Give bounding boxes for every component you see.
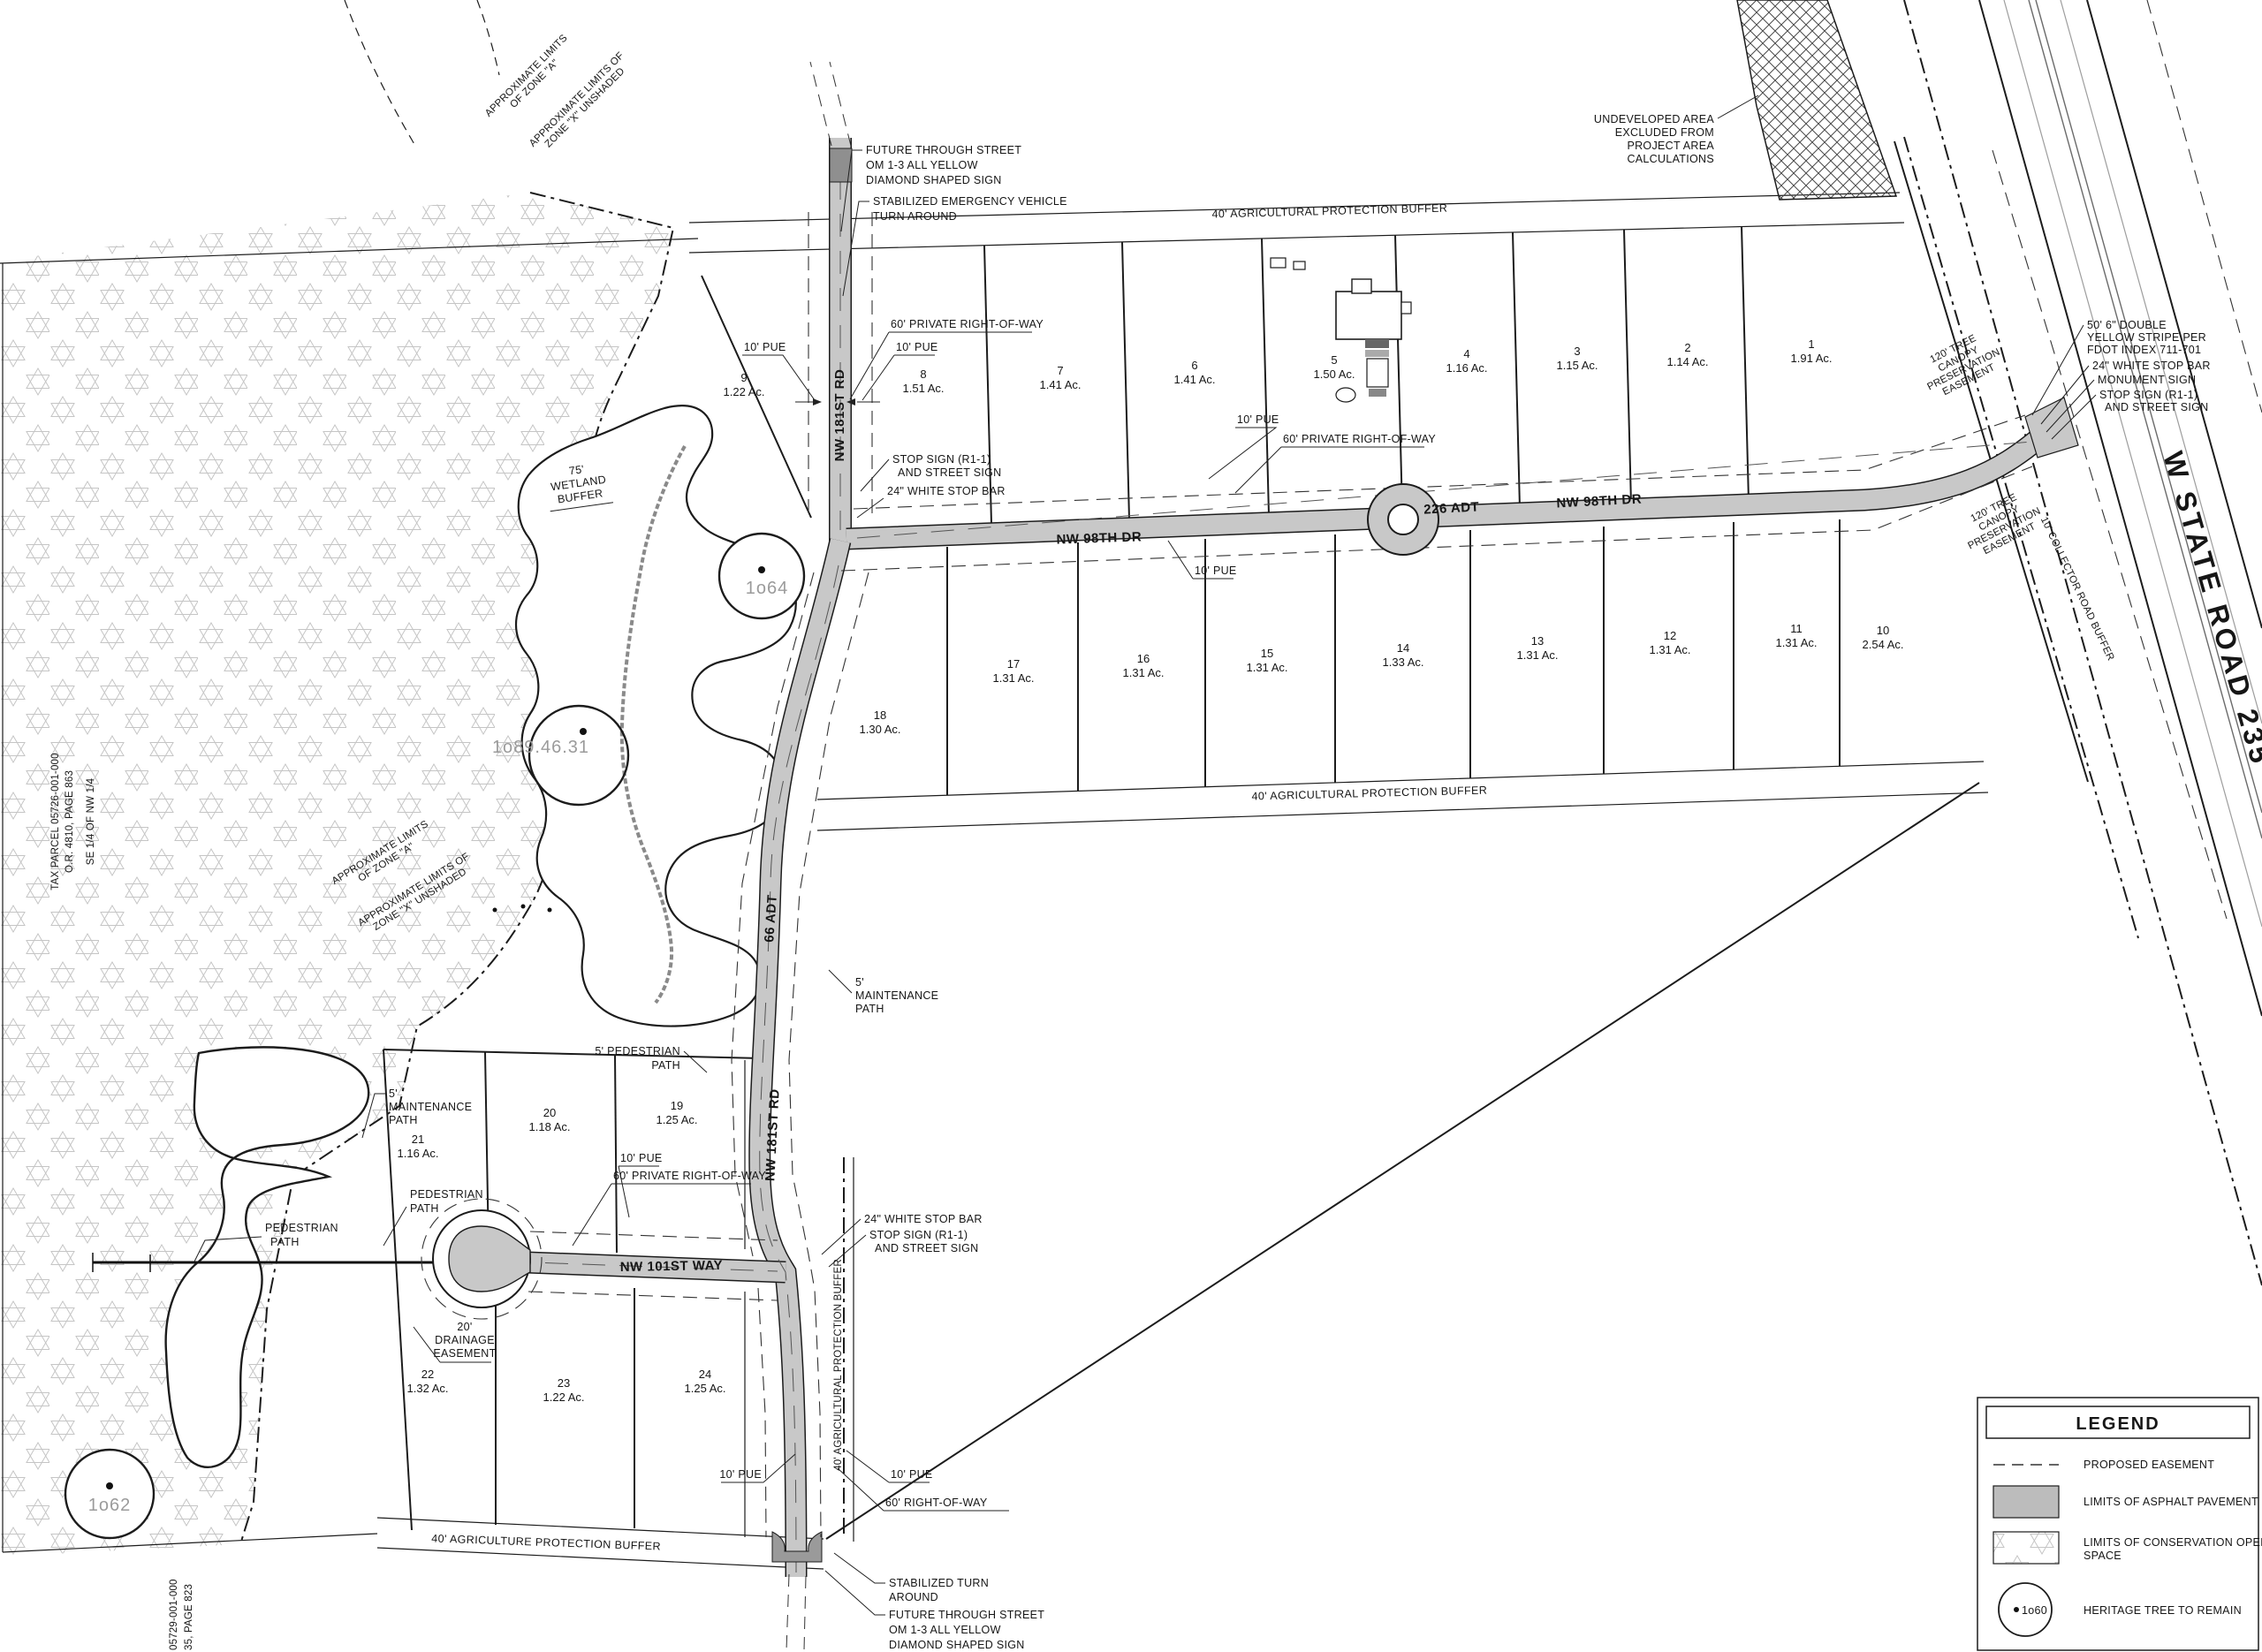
callout-line: YELLOW STRIPE PER: [2087, 331, 2206, 344]
legend-symbol-asphalt: [1993, 1486, 2059, 1518]
buffer-label-mid: 40' AGRICULTURAL PROTECTION BUFFER: [1251, 784, 1487, 803]
callout-stabilized-turn: STABILIZED TURN AROUND: [834, 1553, 989, 1603]
callout-stop-bar-101: 24" WHITE STOP BAR STOP SIGN (R1-1) AND …: [822, 1213, 983, 1267]
callout-line: OM 1-3 ALL YELLOW: [866, 159, 978, 171]
callout-line: UNDEVELOPED AREA: [1594, 113, 1714, 125]
lot-acreage: 1.41 Ac.: [1040, 378, 1082, 391]
callout-line: CALCULATIONS: [1627, 153, 1714, 165]
lot-number: 21: [412, 1133, 424, 1146]
tax-parcel-bottom-line2: 35, PAGE 823: [184, 1584, 194, 1650]
callout-line: MAINTENANCE: [389, 1101, 472, 1113]
lot-acreage: 1.41 Ac.: [1174, 373, 1216, 386]
callout-line: PROJECT AREA: [1627, 140, 1714, 152]
callout-line: 10' PUE: [1237, 413, 1279, 426]
lot-number: 17: [1007, 657, 1020, 671]
callout-pue-g: 10' PUE: [846, 1451, 933, 1482]
callout-pue-d: 10' PUE: [1168, 541, 1237, 579]
wetland-buffer-line: 75': [568, 463, 585, 477]
callout-line: 24" WHITE STOP BAR: [887, 485, 1006, 497]
road-adt-226: 226 ADT: [1423, 499, 1480, 517]
callout-line: 60' PRIVATE RIGHT-OF-WAY: [1283, 433, 1436, 445]
callout-pue-f: 10' PUE: [719, 1454, 795, 1482]
lot-acreage: 1.16 Ac.: [1446, 361, 1488, 375]
lot-acreage: 1.91 Ac.: [1791, 352, 1833, 365]
lot-number: 1: [1808, 337, 1814, 351]
lot-number: 14: [1397, 641, 1409, 655]
lot-acreage: 1.31 Ac.: [1517, 648, 1559, 662]
road-name-nw98th-west: NW 98TH DR: [1056, 529, 1142, 547]
lot-acreage: 2.54 Ac.: [1863, 638, 1904, 651]
buffer-labels: 40' AGRICULTURAL PROTECTION BUFFER 40' A…: [431, 202, 2116, 1553]
callout-line: FUTURE THROUGH STREET: [889, 1609, 1044, 1621]
lot-acreage: 1.31 Ac.: [993, 671, 1035, 685]
callout-stop-bar-west: 24" WHITE STOP BAR: [857, 485, 1006, 518]
callout-line: 24" WHITE STOP BAR: [864, 1213, 983, 1225]
callout-line: AND STREET SIGN: [875, 1242, 978, 1254]
callout-line: MAINTENANCE: [855, 989, 938, 1002]
lot-acreage: 1.16 Ac.: [398, 1147, 439, 1160]
callout-line: STOP SIGN (R1-1): [2099, 389, 2197, 401]
callout-line: FDOT INDEX 711-701: [2087, 344, 2201, 356]
callout-line: PEDESTRIAN: [265, 1222, 338, 1234]
lot-acreage: 1.15 Ac.: [1557, 359, 1598, 372]
callout-private-row-top: 60' PRIVATE RIGHT-OF-WAY: [850, 318, 1044, 399]
state-road-235: [1904, 0, 2262, 1285]
road-name-state-road-235: W STATE ROAD 235: [2157, 448, 2262, 769]
lot-number: 16: [1137, 652, 1150, 665]
lot-number: 2: [1684, 341, 1690, 354]
lot-acreage: 1.14 Ac.: [1667, 355, 1709, 368]
lot-number: 15: [1261, 647, 1273, 660]
lot-acreage: 1.31 Ac.: [1123, 666, 1165, 679]
callout-line: STABILIZED TURN: [889, 1577, 989, 1589]
lot-number: 4: [1463, 347, 1469, 360]
tax-parcel-left-line2: O.R. 4810, PAGE 863: [65, 770, 75, 873]
lot-acreage: 1.50 Ac.: [1314, 368, 1355, 381]
callout-line: TURN AROUND: [873, 210, 957, 223]
heritage-tree-circle-1o62: [65, 1450, 154, 1538]
undeveloped-area-hatch: [1737, 0, 1896, 200]
roundabout: [1368, 484, 1438, 555]
lot-acreage: 1.22 Ac.: [543, 1391, 585, 1404]
collector-road-buffer-label: 10' COLLECTOR ROAD BUFFER: [2038, 515, 2116, 663]
lot-acreage: 1.31 Ac.: [1776, 636, 1818, 649]
callout-line: 5': [855, 976, 864, 989]
callout-tree-canopy-upper: 120' TREE CANOPY PRESERVATION EASEMENT: [1916, 326, 2008, 403]
lot-number: 6: [1191, 359, 1197, 372]
lot-acreage: 1.18 Ac.: [529, 1120, 571, 1133]
legend-label-asphalt: LIMITS OF ASPHALT PAVEMENT: [2084, 1496, 2258, 1508]
callout-line: STOP SIGN (R1-1): [892, 453, 991, 466]
callout-line: OM 1-3 ALL YELLOW: [889, 1624, 1001, 1636]
legend: LEGEND PROPOSED EASEMENT LIMITS OF ASPHA…: [1977, 1398, 2262, 1650]
lot-number: 3: [1574, 345, 1580, 358]
lot-acreage: 1.25 Ac.: [685, 1382, 726, 1395]
road-name-nw181st-north: NW 181ST RD: [832, 369, 847, 462]
lot-number: 8: [920, 368, 926, 381]
lot-number: 9: [740, 371, 747, 384]
legend-title: LEGEND: [2076, 1414, 2160, 1434]
callout-line: ZONE "X" UNSHADED: [543, 66, 627, 150]
callout-line: PATH: [651, 1059, 680, 1072]
callout-line: 10' PUE: [744, 341, 786, 353]
legend-label-conservation-2: SPACE: [2084, 1550, 2122, 1562]
callout-line: AND STREET SIGN: [898, 466, 1001, 479]
callout-line: AND STREET SIGN: [2105, 401, 2208, 413]
lot-number: 12: [1664, 629, 1676, 642]
lot-number: 19: [671, 1099, 683, 1112]
tax-parcel-bottom-line1: 05729-001-000: [169, 1579, 179, 1650]
lot-acreage: 1.22 Ac.: [724, 385, 765, 398]
callout-line: MONUMENT SIGN: [2098, 374, 2196, 386]
callout-line: 24" WHITE STOP BAR: [2092, 360, 2211, 372]
lot-acreage: 1.31 Ac.: [1247, 661, 1288, 674]
road-name-nw101st: NW 101ST WAY: [620, 1258, 724, 1275]
legend-label-easement: PROPOSED EASEMENT: [2084, 1459, 2214, 1471]
tax-parcel-left-line3: SE 1/4 OF NW 1/4: [86, 777, 96, 865]
callout-line: 60' PRIVATE RIGHT-OF-WAY: [613, 1170, 766, 1182]
site-plan-drawing: 1o64 1o89.46.31 1o62 11.91 Ac. 21.14 Ac.…: [0, 0, 2262, 1652]
lot-number: 20: [543, 1106, 556, 1119]
site-plan-sheet: 1o64 1o89.46.31 1o62 11.91 Ac. 21.14 Ac.…: [0, 0, 2262, 1652]
callout-line: 10' PUE: [1195, 565, 1237, 577]
lot-number: 24: [699, 1368, 711, 1381]
cul-de-sac: [433, 1210, 530, 1307]
lot-acreage: 1.25 Ac.: [657, 1113, 698, 1126]
callout-pedestrian-path-5: 5' PEDESTRIAN PATH: [595, 1045, 707, 1072]
legend-label-conservation-1: LIMITS OF CONSERVATION OPEN: [2084, 1536, 2262, 1549]
callout-line: 5': [389, 1087, 398, 1100]
callout-drainage: 20' DRAINAGE EASEMENT: [414, 1321, 497, 1362]
callout-line: 10' PUE: [891, 1468, 933, 1481]
lot-acreage: 1.30 Ac.: [860, 723, 901, 736]
callout-line: PATH: [410, 1202, 439, 1215]
buffer-label-top: 40' AGRICULTURAL PROTECTION BUFFER: [1211, 202, 1447, 221]
callout-line: 60' PRIVATE RIGHT-OF-WAY: [891, 318, 1044, 330]
buffer-label-vertical: 40' AGRICULTURAL PROTECTION BUFFER: [833, 1259, 844, 1471]
lot-acreage: 1.32 Ac.: [407, 1382, 449, 1395]
callout-line: AROUND: [889, 1591, 938, 1603]
callout-line: PEDESTRIAN: [410, 1188, 483, 1201]
tree-tag-1o62: 1o62: [88, 1496, 132, 1515]
lot-number: 10: [1877, 624, 1889, 637]
legend-symbol-conservation: [1993, 1532, 2059, 1564]
callout-line: 10' PUE: [620, 1152, 663, 1164]
lot-number: 18: [874, 709, 886, 722]
callout-line: PATH: [389, 1114, 418, 1126]
callout-maintenance-path-mid: 5' MAINTENANCE PATH: [829, 970, 938, 1015]
lot-number: 7: [1057, 364, 1063, 377]
callout-pue-e: 10' PUE: [619, 1152, 663, 1217]
callout-line: PATH: [855, 1003, 884, 1015]
lot-number: 22: [421, 1368, 434, 1381]
callout-line: DIAMOND SHAPED SIGN: [889, 1639, 1025, 1651]
callout-line: EASEMENT: [433, 1347, 496, 1360]
tree-tag-1o64: 1o64: [746, 579, 789, 598]
callout-line: APPROXIMATE LIMITS: [483, 33, 570, 119]
callout-line: STABILIZED EMERGENCY VEHICLE: [873, 195, 1067, 208]
callout-line: 20': [457, 1321, 472, 1333]
tax-parcel-left-line1: TAX PARCEL 05726-001-000: [50, 753, 61, 890]
callout-line: DIAMOND SHAPED SIGN: [866, 174, 1002, 186]
roads: [504, 62, 2078, 1650]
callout-line: 5' PEDESTRIAN: [595, 1045, 680, 1057]
lot-number: 11: [1790, 622, 1803, 635]
callout-line: 50' 6" DOUBLE: [2087, 319, 2167, 331]
lot-number: 23: [558, 1376, 570, 1390]
callout-line: 60' RIGHT-OF-WAY: [885, 1497, 988, 1509]
callout-line: PATH: [270, 1236, 300, 1248]
callout-line: EXCLUDED FROM: [1615, 126, 1714, 139]
lot-acreage: 1.51 Ac.: [903, 382, 945, 395]
callout-line: 10' PUE: [719, 1468, 762, 1481]
legend-label-heritage-tree: HERITAGE TREE TO REMAIN: [2084, 1604, 2242, 1617]
heritage-tree-circle-1o64: [719, 534, 804, 618]
lot-number: 13: [1531, 634, 1544, 648]
buffer-label-bottom: 40' AGRICULTURE PROTECTION BUFFER: [431, 1532, 661, 1552]
callout-line: STOP SIGN (R1-1): [869, 1229, 968, 1241]
callout-line: 10' PUE: [896, 341, 938, 353]
legend-tree-tag: 1o60: [2022, 1604, 2047, 1617]
tree-tag-1o89: 1o89.46.31: [492, 738, 589, 757]
lot-acreage: 1.31 Ac.: [1650, 643, 1691, 656]
lot-number: 5: [1331, 353, 1337, 367]
callout-line: DRAINAGE: [435, 1334, 495, 1346]
callout-line: FUTURE THROUGH STREET: [866, 144, 1021, 156]
lot-acreage: 1.33 Ac.: [1383, 655, 1424, 669]
callout-undeveloped: UNDEVELOPED AREA EXCLUDED FROM PROJECT A…: [1594, 95, 1758, 165]
